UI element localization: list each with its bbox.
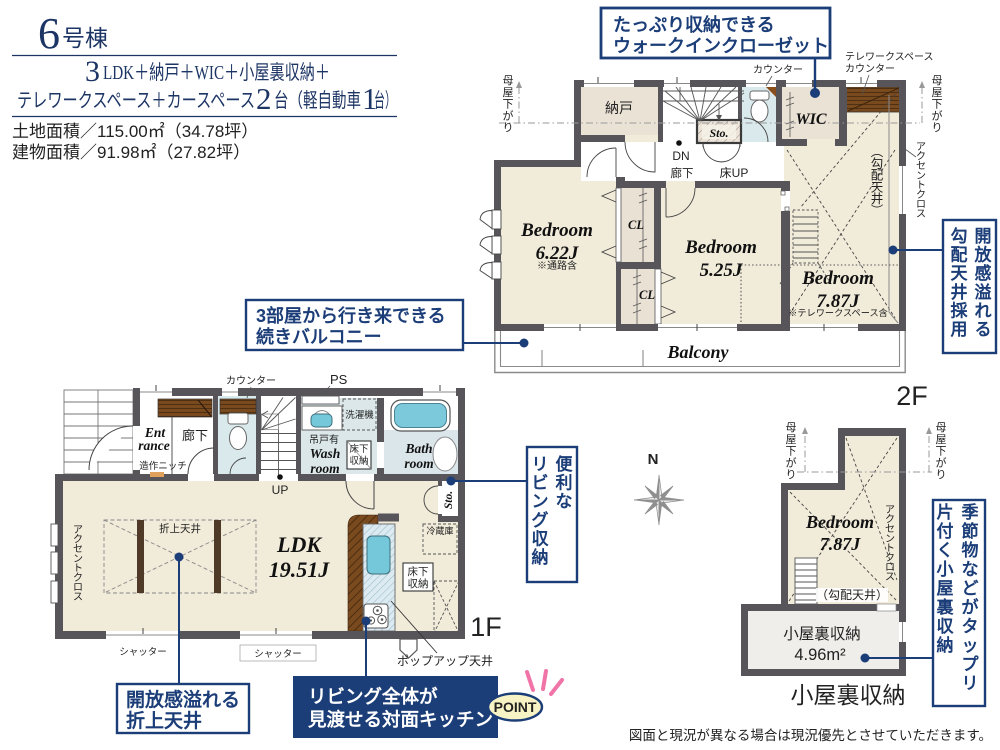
svg-text:母屋下がり: 母屋下がり: [936, 421, 947, 481]
svg-text:アクセントクロス: アクセントクロス: [885, 505, 895, 583]
svg-text:Bedroom: Bedroom: [520, 220, 593, 241]
svg-text:room: room: [404, 456, 433, 471]
svg-text:PS: PS: [330, 372, 348, 387]
svg-text:UP: UP: [272, 483, 289, 497]
svg-text:季節物などがタップリ: 季節物などがタップリ: [961, 502, 980, 693]
svg-text:台）: 台）: [374, 89, 396, 112]
svg-text:テレワークスペース＋カースペース: テレワークスペース＋カースペース: [17, 89, 255, 112]
svg-text:1F: 1F: [470, 612, 502, 642]
svg-text:床下: 床下: [349, 443, 368, 455]
svg-text:洗濯機: 洗濯機: [345, 409, 374, 421]
svg-text:納戸: 納戸: [605, 100, 633, 116]
svg-text:Sto.: Sto.: [709, 126, 728, 140]
svg-text:冷蔵庫: 冷蔵庫: [426, 525, 453, 536]
svg-text:廊下: 廊下: [671, 166, 694, 180]
svg-text:母屋下がり: 母屋下がり: [786, 421, 797, 481]
svg-text:小屋裏収納: 小屋裏収納: [791, 682, 906, 708]
svg-text:5.25J: 5.25J: [700, 260, 743, 281]
svg-text:リビング収納: リビング収納: [532, 455, 550, 567]
svg-text:台（軽自動車: 台（軽自動車: [274, 89, 361, 112]
svg-text:rance: rance: [138, 438, 170, 453]
svg-text:Balcony: Balcony: [667, 342, 730, 362]
svg-text:4.96m²: 4.96m²: [794, 646, 846, 664]
svg-text:床UP: 床UP: [720, 166, 749, 180]
svg-text:床下: 床下: [408, 565, 429, 578]
svg-text:ウォークインクローゼット: ウォークインクローゼット: [613, 35, 829, 56]
svg-text:小屋裏収納: 小屋裏収納: [783, 624, 861, 643]
svg-text:Bath: Bath: [404, 441, 432, 456]
svg-text:DN: DN: [672, 149, 689, 163]
svg-text:吊戸有: 吊戸有: [309, 433, 339, 446]
svg-text:2: 2: [256, 81, 272, 116]
svg-text:リビング全体が: リビング全体が: [308, 686, 438, 707]
svg-text:シャッター: シャッター: [119, 647, 167, 658]
svg-text:たっぷり収納できる: たっぷり収納できる: [613, 14, 775, 35]
svg-text:Bedroom: Bedroom: [805, 512, 874, 532]
svg-text:図面と現況が異なる場合は現況優先とさせていただきます。: 図面と現況が異なる場合は現況優先とさせていただきます。: [629, 728, 992, 743]
svg-text:見渡せる対面キッチン: 見渡せる対面キッチン: [308, 709, 493, 730]
svg-text:CL: CL: [628, 218, 644, 232]
svg-text:Wash: Wash: [310, 446, 341, 461]
svg-text:建物面積／91.98㎡（27.82坪）: 建物面積／91.98㎡（27.82坪）: [12, 143, 250, 162]
svg-text:母屋下がり: 母屋下がり: [932, 74, 943, 134]
svg-text:2F: 2F: [896, 381, 928, 411]
svg-text:LDK＋納戸＋WIC＋小屋裏収納＋: LDK＋納戸＋WIC＋小屋裏収納＋: [103, 61, 330, 84]
svg-text:シャッター: シャッター: [254, 649, 302, 660]
svg-text:収納: 収納: [408, 577, 429, 590]
svg-text:テレワークスペース: テレワークスペース: [845, 51, 934, 63]
svg-text:19.51J: 19.51J: [269, 557, 331, 582]
svg-text:母屋下がり: 母屋下がり: [503, 74, 514, 134]
svg-text:収納: 収納: [349, 455, 368, 467]
svg-text:ポップアップ天井: ポップアップ天井: [397, 654, 493, 668]
svg-text:Bedroom: Bedroom: [684, 237, 757, 258]
svg-text:カウンター: カウンター: [753, 64, 803, 76]
svg-text:号棟: 号棟: [62, 26, 108, 51]
svg-text:造作ニッチ: 造作ニッチ: [139, 460, 187, 472]
svg-text:（勾配天井）: （勾配天井）: [816, 588, 888, 602]
svg-text:土地面積／115.00㎡（34.78坪）: 土地面積／115.00㎡（34.78坪）: [12, 122, 258, 141]
svg-text:続きバルコニー: 続きバルコニー: [256, 326, 382, 347]
svg-text:WIC: WIC: [795, 111, 826, 128]
svg-text:アクセントクロス: アクセントクロス: [916, 142, 926, 220]
svg-text:アクセントクロス: アクセントクロス: [73, 525, 83, 603]
svg-text:便利な: 便利な: [556, 454, 574, 511]
svg-text:3: 3: [85, 55, 100, 88]
svg-text:※通路含: ※通路含: [537, 259, 577, 272]
svg-text:CL: CL: [639, 288, 655, 302]
svg-text:7.87J: 7.87J: [820, 534, 862, 554]
svg-text:room: room: [310, 461, 339, 476]
svg-text:6: 6: [38, 9, 60, 58]
svg-text:N: N: [648, 451, 659, 468]
svg-text:カウンター: カウンター: [845, 63, 895, 75]
svg-text:LDK: LDK: [276, 532, 322, 557]
svg-text:︵勾配天井︶: ︵勾配天井︶: [871, 145, 884, 218]
svg-text:廊下: 廊下: [182, 428, 208, 443]
svg-text:カウンター: カウンター: [226, 375, 276, 387]
svg-text:Sto.: Sto.: [443, 491, 455, 509]
svg-text:開放感溢れる: 開放感溢れる: [126, 688, 240, 711]
svg-text:片付く小屋裏収納: 片付く小屋裏収納: [936, 502, 955, 655]
svg-text:勾配天井採用: 勾配天井採用: [951, 226, 969, 339]
svg-text:開放感溢れる: 開放感溢れる: [974, 227, 993, 339]
svg-text:折上天井: 折上天井: [159, 522, 201, 535]
svg-text:3部屋から行き来できる: 3部屋から行き来できる: [256, 305, 446, 326]
svg-text:POINT: POINT: [494, 699, 537, 715]
svg-text:折上天井: 折上天井: [126, 710, 202, 732]
svg-text:※テレワークスペース含: ※テレワークスペース含: [788, 307, 888, 318]
svg-text:Bedroom: Bedroom: [801, 268, 874, 289]
